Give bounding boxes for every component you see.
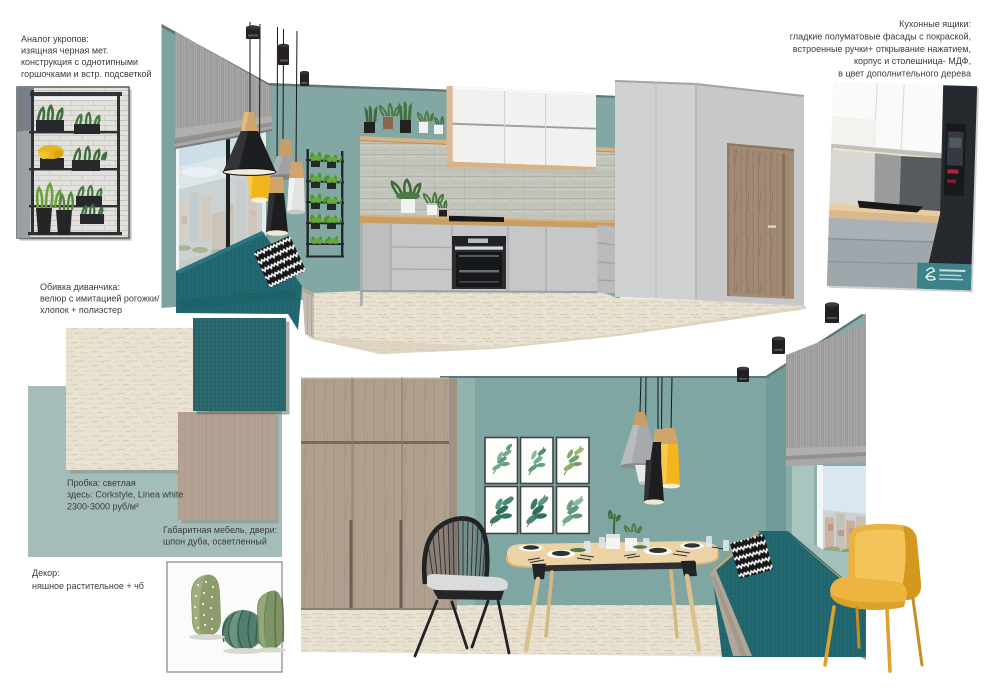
svg-text:конструкция с однотипными: конструкция с однотипными xyxy=(21,57,138,67)
svg-text:Кухонные ящики:: Кухонные ящики: xyxy=(899,19,971,29)
svg-text:Пробка: светлая: Пробка: светлая xyxy=(67,478,136,488)
svg-text:хлопок + полиэстер: хлопок + полиэстер xyxy=(40,305,122,315)
svg-text:встроенные ручки+ открывание н: встроенные ручки+ открывание нажатием, xyxy=(793,44,971,54)
svg-text:изящная черная мет.: изящная черная мет. xyxy=(21,46,108,56)
svg-text:Габаритная мебель, двери:: Габаритная мебель, двери: xyxy=(163,525,277,535)
svg-text:горшочками и встр. подсветкой: горшочками и встр. подсветкой xyxy=(21,69,152,79)
svg-text:няшное растительное + чб: няшное растительное + чб xyxy=(32,581,144,591)
svg-text:корпус и столешница- МДФ,: корпус и столешница- МДФ, xyxy=(854,56,971,66)
svg-text:Декор:: Декор: xyxy=(32,568,60,578)
svg-text:гладкие полуматовые фасады с п: гладкие полуматовые фасады с покраской, xyxy=(790,31,971,41)
svg-text:2300-3000 руб/м²: 2300-3000 руб/м² xyxy=(67,501,139,511)
svg-text:Обивка диванчика:: Обивка диванчика: xyxy=(40,282,120,292)
svg-text:велюр с имитацией рогожки/: велюр с имитацией рогожки/ xyxy=(40,294,160,304)
svg-text:Аналог укропов:: Аналог укропов: xyxy=(21,34,89,44)
svg-text:здесь: Corkstyle, Linea white: здесь: Corkstyle, Linea white xyxy=(67,490,183,500)
svg-text:в цвет дополнительного дерева: в цвет дополнительного дерева xyxy=(838,69,971,79)
svg-text:шпон дуба, осветленный: шпон дуба, осветленный xyxy=(163,537,267,547)
